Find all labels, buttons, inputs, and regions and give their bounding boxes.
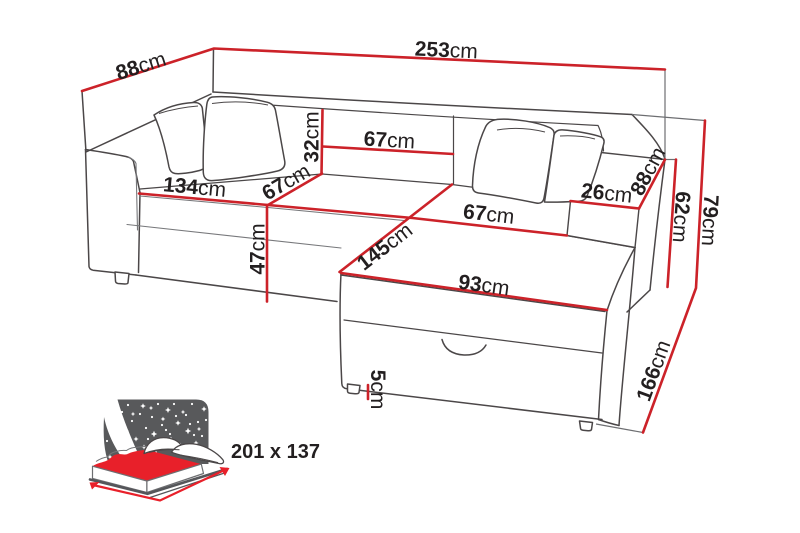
svg-text:79cm: 79cm <box>697 194 723 246</box>
svg-text:253cm: 253cm <box>414 38 478 64</box>
svg-text:5cm: 5cm <box>366 370 389 410</box>
svg-text:201 x 137: 201 x 137 <box>231 441 320 463</box>
svg-text:67cm: 67cm <box>363 128 416 154</box>
svg-text:47cm: 47cm <box>247 223 270 274</box>
svg-text:62cm: 62cm <box>668 191 695 244</box>
svg-text:32cm: 32cm <box>301 111 324 162</box>
